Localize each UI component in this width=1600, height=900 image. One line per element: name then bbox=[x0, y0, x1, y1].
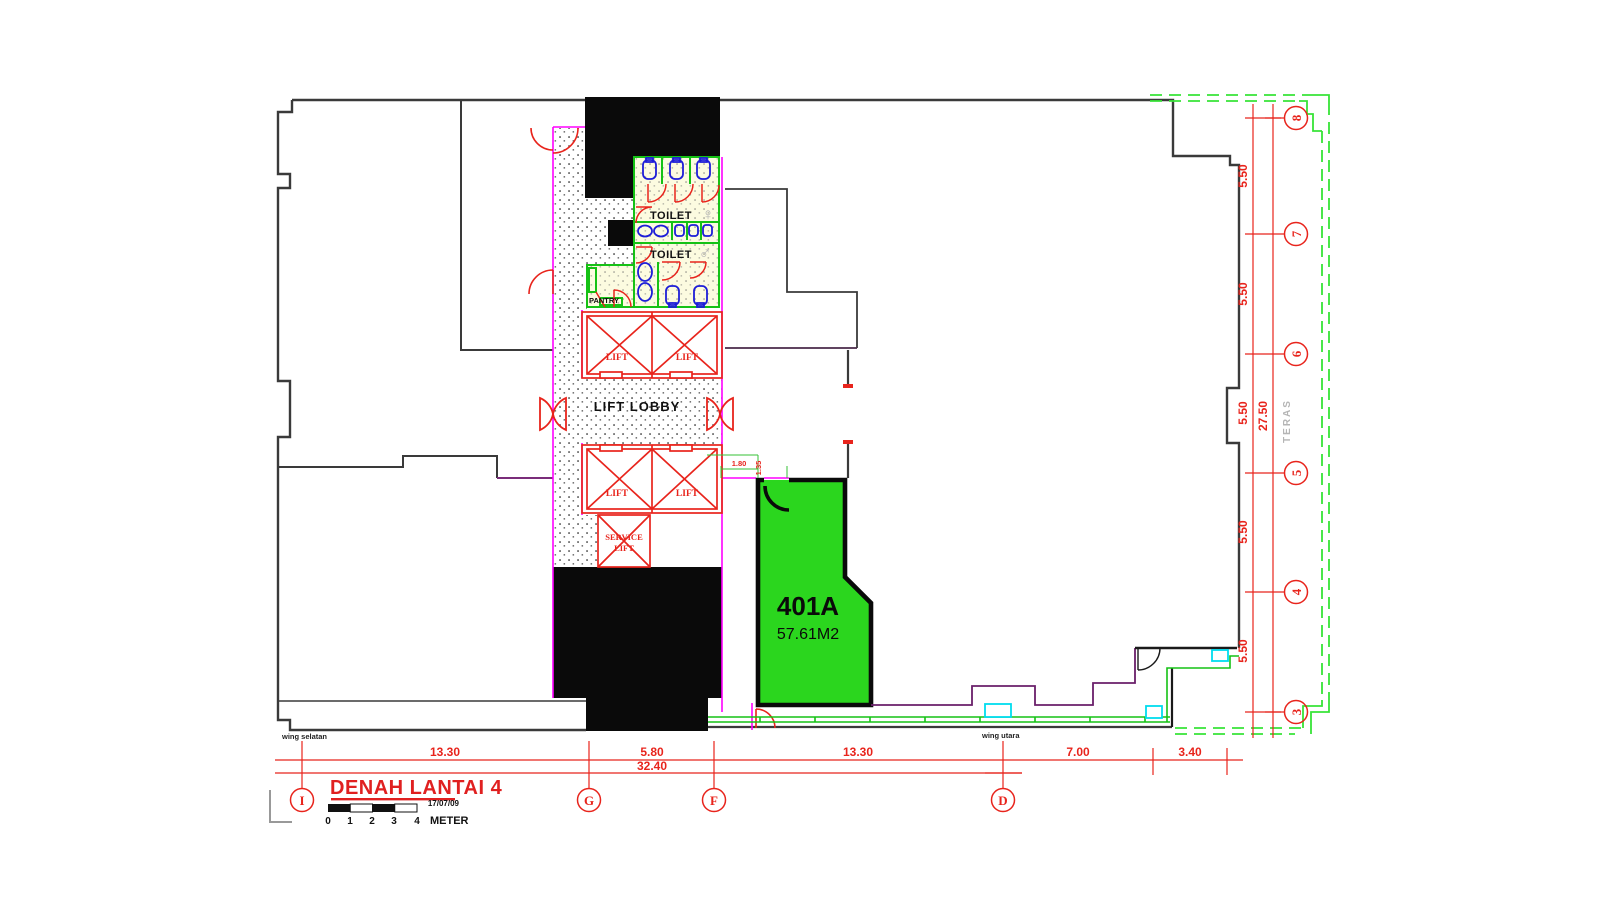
grid-label-f: F bbox=[710, 793, 718, 808]
toilet-male-label: TOILET bbox=[650, 249, 692, 261]
corner-mark bbox=[270, 790, 292, 822]
grid-label-4: 4 bbox=[1289, 588, 1304, 595]
plan-date: 17/07/09 bbox=[428, 799, 460, 808]
dim-d-x: 7.00 bbox=[1066, 745, 1090, 759]
scale-tick-0: 0 bbox=[325, 816, 331, 827]
dim-i-g: 13.30 bbox=[430, 745, 460, 759]
unit-lower-door-arc bbox=[756, 709, 775, 728]
floor-plan-page: TOILET ♀ TOILET ♂ PANTRY LIFT LIFT LIFT … bbox=[0, 0, 1600, 900]
dim-7-6: 5.50 bbox=[1236, 282, 1250, 306]
wing-south-label: wing selatan bbox=[281, 732, 327, 741]
lift-label-2: LIFT bbox=[676, 353, 699, 363]
grid-label-i: I bbox=[299, 793, 304, 808]
grid-label-g: G bbox=[584, 793, 594, 808]
dim-4-3: 5.50 bbox=[1236, 639, 1250, 663]
dim-6-5: 5.50 bbox=[1236, 401, 1250, 425]
pantry-label: PANTRY bbox=[589, 296, 619, 305]
scale-tick-1: 1 bbox=[347, 816, 353, 827]
grid-label-5: 5 bbox=[1289, 469, 1304, 476]
grid-label-3: 3 bbox=[1289, 708, 1304, 715]
window-marks bbox=[985, 650, 1228, 718]
entry-depth-dim: 1.35 bbox=[754, 461, 763, 476]
terrace-label: TERAS bbox=[1282, 399, 1293, 443]
floor-plan-drawing: TOILET ♀ TOILET ♂ PANTRY LIFT LIFT LIFT … bbox=[0, 0, 1600, 900]
grid-label-8: 8 bbox=[1289, 114, 1304, 121]
scale-unit-label: METER bbox=[430, 815, 469, 827]
dim-8-7: 5.50 bbox=[1236, 164, 1250, 188]
right-dimensions: 5.50 5.50 5.50 5.50 5.50 27.50 bbox=[1236, 104, 1284, 738]
scale-bar bbox=[328, 804, 417, 812]
dim-x-end: 3.40 bbox=[1178, 745, 1202, 759]
male-symbol-icon: ♂ bbox=[699, 244, 712, 263]
title-block: DENAH LANTAI 4 17/07/09 0 1 2 3 4 METER bbox=[270, 777, 503, 827]
lift-label-4: LIFT bbox=[676, 489, 699, 499]
dim-g-f: 5.80 bbox=[640, 745, 664, 759]
dim-right-total: 27.50 bbox=[1256, 401, 1270, 431]
lift-label-1: LIFT bbox=[606, 353, 629, 363]
lift-lobby-label: LIFT LOBBY bbox=[594, 399, 681, 414]
entry-width-dim: 1.80 bbox=[732, 459, 747, 468]
toilet-female-label: TOILET bbox=[650, 210, 692, 222]
grid-label-d: D bbox=[998, 793, 1007, 808]
unit-401a[interactable]: 401A 57.61M2 bbox=[758, 474, 871, 705]
scale-tick-3: 3 bbox=[391, 816, 397, 827]
grid-label-7: 7 bbox=[1289, 230, 1304, 237]
service-lift-label-line1: SERVICE bbox=[605, 532, 643, 542]
lift-label-3: LIFT bbox=[606, 489, 629, 499]
plan-title: DENAH LANTAI 4 bbox=[330, 777, 503, 799]
dim-f-d: 13.30 bbox=[843, 745, 873, 759]
grid-label-6: 6 bbox=[1289, 350, 1304, 357]
female-symbol-icon: ♀ bbox=[702, 205, 715, 224]
scale-tick-2: 2 bbox=[369, 816, 375, 827]
dim-bottom-total: 32.40 bbox=[637, 759, 667, 773]
unit-id-label: 401A bbox=[777, 591, 839, 621]
service-lift-label-line2: LIFT bbox=[614, 543, 634, 553]
unit-area-label: 57.61M2 bbox=[777, 626, 839, 643]
dim-5-4: 5.50 bbox=[1236, 520, 1250, 544]
scale-tick-4: 4 bbox=[414, 816, 420, 827]
wing-north-label: wing utara bbox=[981, 731, 1020, 740]
